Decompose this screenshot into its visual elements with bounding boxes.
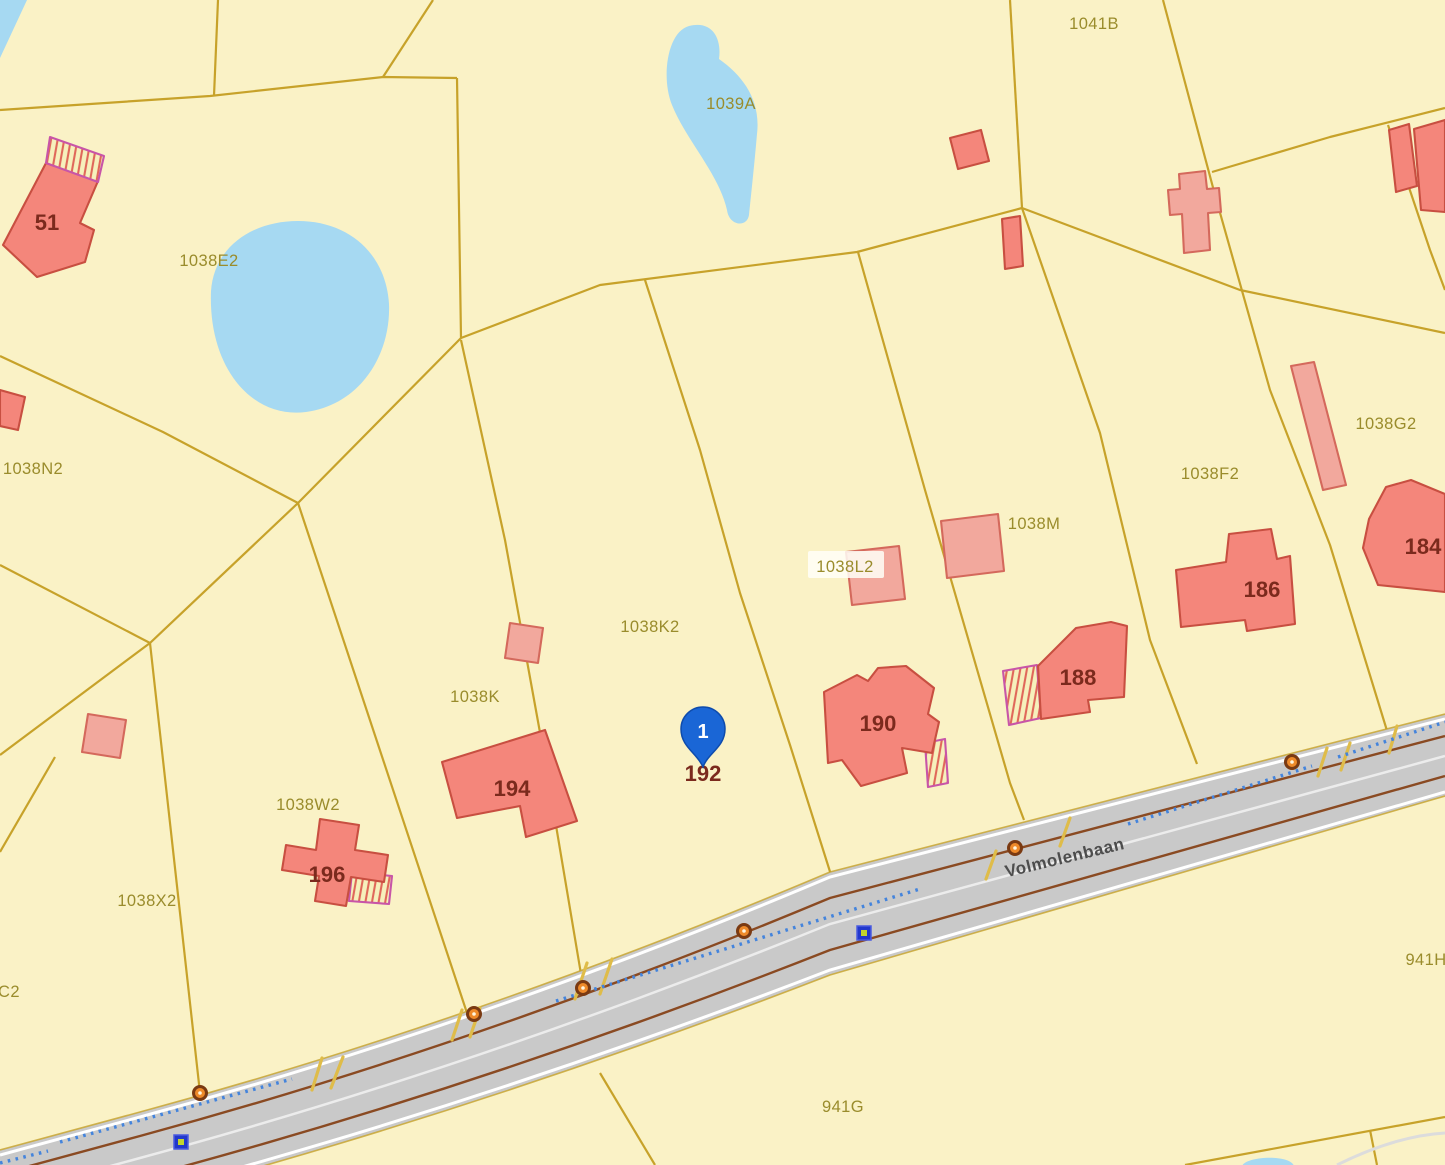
survey-node-center <box>1290 760 1294 764</box>
parcel-boundary <box>150 643 200 1093</box>
house-number-184: 184 <box>1405 534 1442 559</box>
cadastral-map[interactable]: 1038E21039A1041B1038N21038G21038F21038M1… <box>0 0 1445 1165</box>
building-light-shed-west[interactable] <box>82 714 126 758</box>
parcel-label-1038K: 1038K <box>450 688 500 706</box>
parcel-label-1039A: 1039A <box>706 95 756 113</box>
map-pin-number: 1 <box>697 721 708 743</box>
cadastral-map-viewport[interactable]: 1038E21039A1041B1038N21038G21038F21038M1… <box>0 0 1445 1165</box>
parcel-boundary <box>0 643 150 755</box>
parcel-label-1038G2: 1038G2 <box>1355 415 1416 433</box>
house-number-194: 194 <box>494 776 531 801</box>
building-188-annex[interactable] <box>1003 665 1041 725</box>
survey-node-center <box>742 929 746 933</box>
survey-node-center <box>1013 846 1017 850</box>
building-light-1038M[interactable] <box>941 514 1004 578</box>
parcel-boundary <box>600 1073 655 1165</box>
water-top-left-corner <box>0 0 27 58</box>
parcel-label-1038W2: 1038W2 <box>276 796 340 814</box>
corner-road-curve <box>1337 1133 1445 1165</box>
parcel-label-1041B: 1041B <box>1069 15 1119 33</box>
parcel-boundary <box>461 340 583 986</box>
water-bottom-right-corner <box>1242 1158 1294 1165</box>
parcel-boundary <box>1163 0 1392 747</box>
building-left-edge[interactable] <box>0 390 25 430</box>
parcel-boundary <box>461 208 1022 338</box>
parcel-label-1038E2: 1038E2 <box>179 252 238 270</box>
parcel-boundary <box>298 503 467 1013</box>
building-small-shed-north[interactable] <box>950 130 989 169</box>
parcel-boundary <box>0 565 150 643</box>
parcel-boundary <box>0 757 55 852</box>
utility-marker-center <box>178 1139 184 1145</box>
parcel-label-1038M: 1038M <box>1008 515 1060 533</box>
parcel-boundary <box>645 280 832 878</box>
survey-node-center <box>581 986 585 990</box>
house-number-51: 51 <box>35 210 59 235</box>
parcel-boundary <box>150 503 298 643</box>
road-volmolenbaan[interactable] <box>0 714 1445 1165</box>
house-number-196: 196 <box>309 862 346 887</box>
road-layer <box>0 714 1445 1165</box>
parcel-label-941G: 941G <box>822 1098 864 1116</box>
parcel-label-1038X2: 1038X2 <box>117 892 176 910</box>
pond-1038E2 <box>211 221 389 413</box>
building-narrow-north[interactable] <box>1002 216 1023 269</box>
parcel-boundary <box>0 77 457 110</box>
pond-1039A <box>667 25 758 224</box>
building-light-bar-1038G2[interactable] <box>1291 362 1346 490</box>
building-narrow-topright[interactable] <box>1389 124 1417 192</box>
building-light-cross-1041B[interactable] <box>1168 171 1221 253</box>
parcel-boundary <box>1010 0 1022 208</box>
survey-node-center <box>198 1091 202 1095</box>
pin-layer: 1 <box>681 707 725 767</box>
survey-node-center <box>472 1012 476 1016</box>
house-number-188: 188 <box>1060 665 1097 690</box>
parcel-label-1038L2: 1038L2 <box>816 558 873 576</box>
utility-marker-center <box>861 930 867 936</box>
building-corner-topright[interactable] <box>1414 120 1445 212</box>
house-number-186: 186 <box>1244 577 1281 602</box>
house-number-190: 190 <box>860 711 897 736</box>
parcel-boundary <box>1022 208 1445 333</box>
parcel-label-1038N2: 1038N2 <box>3 460 63 478</box>
parcel-boundary <box>1185 1117 1445 1165</box>
parcel-label-941H: 941H <box>1405 951 1445 969</box>
parcel-boundary <box>214 0 218 96</box>
parcel-label-1038F2: 1038F2 <box>1181 465 1239 483</box>
parcel-boundary <box>383 0 433 77</box>
parcel-label-1038K2: 1038K2 <box>620 618 679 636</box>
parcel-label-C2: C2 <box>0 983 20 1001</box>
building-light-shed-1038K[interactable] <box>505 623 543 663</box>
